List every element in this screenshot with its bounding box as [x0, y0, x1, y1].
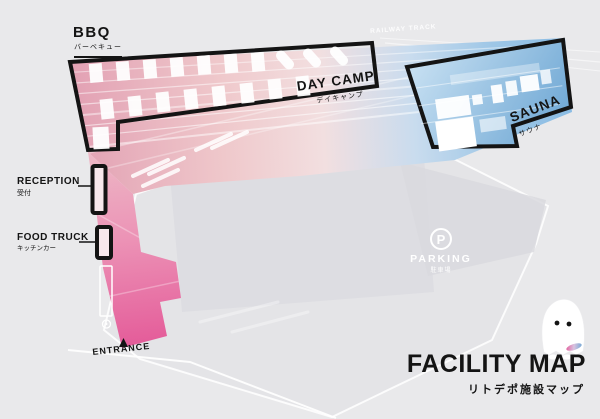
page-subtitle: リトデポ施設マップ [468, 385, 585, 396]
parking-area-label: PARKING [399, 254, 483, 265]
page-title: FACILITY MAP [407, 352, 586, 377]
facility-map-canvas: P BBQ バーベキュー DAY CAMP デイキャンプ SAUNA サウナ R… [0, 0, 600, 419]
bbq-area-label: BBQ [73, 25, 111, 40]
svg-text:P: P [437, 232, 446, 247]
reception-area-sublabel: 受付 [17, 190, 31, 197]
reception-area-label: RECEPTION [17, 177, 80, 187]
bbq-area-sublabel: バーベキュー [74, 44, 122, 51]
food-truck-area-sublabel: キッチンカー [17, 246, 56, 253]
food-truck-area-label: FOOD TRUCK [17, 233, 89, 243]
bbq-underline [74, 56, 122, 58]
reception-marker [78, 166, 106, 213]
parking-area-sublabel: 駐車場 [399, 268, 483, 274]
